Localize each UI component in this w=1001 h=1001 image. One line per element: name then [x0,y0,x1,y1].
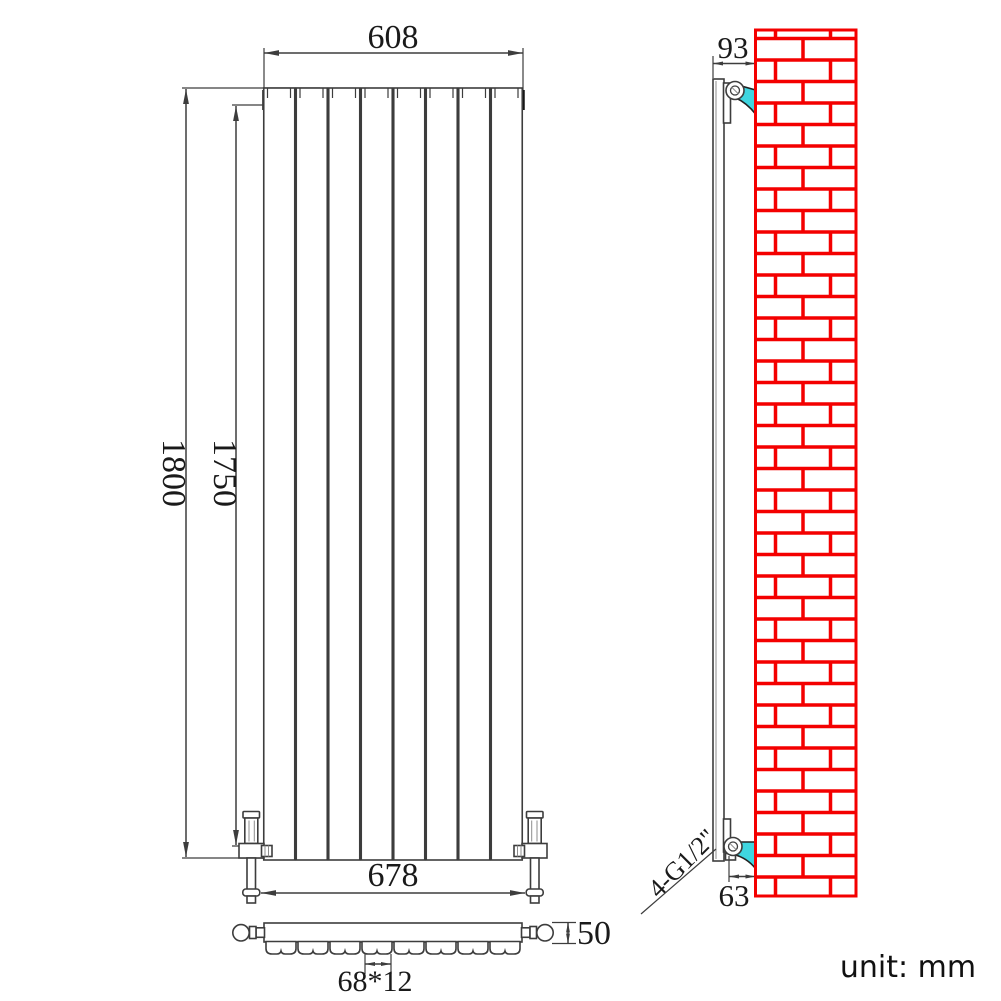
dim-wall-offset-bottom: 63 [719,856,756,913]
panel [329,88,360,860]
bump [490,942,520,955]
panel [296,88,327,860]
plan-end-right [522,925,554,941]
panel [426,88,457,860]
bracket-bottom [724,819,756,869]
bump [394,942,424,955]
panel [361,88,392,860]
plan-end-left [233,925,265,941]
front-view: 608 1800 1750 678 [155,19,547,903]
brick-wall [756,30,857,896]
radiator-technical-drawing: 608 1800 1750 678 [0,0,1001,1001]
panel [264,88,295,860]
radiator-side-profile [713,79,724,861]
bracket-top [724,82,756,124]
bump [298,942,328,955]
plan-view: 50 68*12 [233,915,611,998]
dim-valve-span: 678 [261,857,525,894]
dim-pipe-centers-height-label: 1750 [206,439,243,507]
dim-wall-offset-top: 93 [713,30,756,78]
panel [491,88,522,860]
bump [458,942,488,955]
dim-panel-pitch-label: 68*12 [338,965,413,998]
dim-depth-label: 50 [577,915,611,952]
plan-body [264,923,522,942]
dim-overall-width-label: 608 [368,19,419,56]
dim-valve-span-label: 678 [368,857,419,894]
bump [330,942,360,955]
unit-label: unit: mm [840,950,976,985]
dim-panel-pitch: 68*12 [338,954,413,998]
dim-wall-offset-bottom-label: 63 [719,878,750,913]
radiator-panels [264,88,523,860]
side-view: 93 4-G1/2" [641,30,856,914]
bump [362,942,392,955]
bump [266,942,296,955]
connection-spec-label: 4-G1/2" [642,823,722,903]
bump [426,942,456,955]
panel [459,88,490,860]
dim-wall-offset-top-label: 93 [718,30,749,65]
connection-spec: 4-G1/2" [641,823,722,914]
drawing-canvas: 608 1800 1750 678 [0,0,1001,1001]
plan-bumps [266,942,520,955]
dim-overall-height-label: 1800 [155,439,192,507]
dim-depth: 50 [552,915,611,952]
panel [394,88,425,860]
